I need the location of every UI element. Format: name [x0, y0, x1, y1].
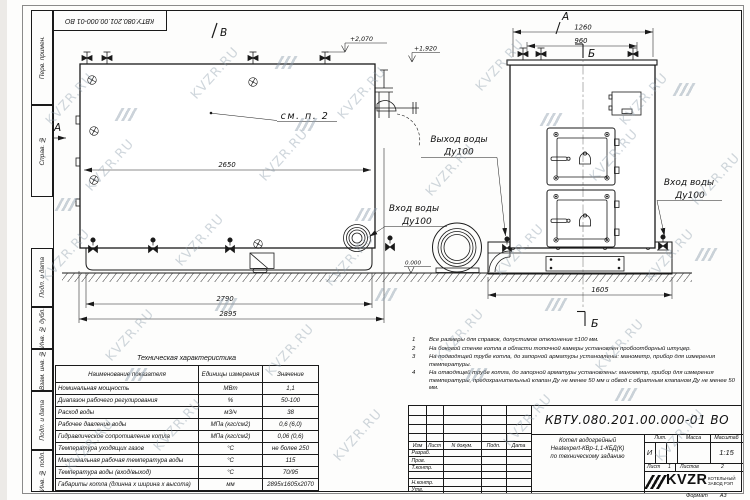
- row-unit: м3/ч: [199, 407, 263, 419]
- row-value: 38: [263, 407, 319, 419]
- row-name: Температура воды (вход/выход): [56, 467, 199, 479]
- scale-header: Масштаб: [710, 435, 743, 441]
- row-name: Габариты котла (длинна х ширина х высота…: [56, 479, 199, 491]
- kvzr-logo-text: KVZR: [666, 472, 707, 488]
- note-item: 4На отводящей трубе котла, до запорной а…: [412, 370, 738, 392]
- note-text: На отводящей трубе котла, до запорной ар…: [429, 370, 738, 392]
- col-date: Дата: [506, 443, 531, 449]
- note-text: Все размеры для справок, допустимое откл…: [429, 337, 738, 344]
- tech-header-value: Значение: [263, 366, 319, 383]
- table-row: Габариты котла (длинна х ширина х высота…: [56, 479, 319, 491]
- row-unit: МПа (кгс/см2): [199, 431, 263, 443]
- row-name: Гидравлическое сопротивление котла: [56, 431, 199, 443]
- table-row: Номинальная мощностьМВт1,1: [56, 383, 319, 395]
- note-item: 1Все размеры для справок, допустимое отк…: [412, 337, 738, 344]
- kvzr-logo-icon: [644, 475, 667, 489]
- table-row: Диапазон рабочего регулирования%50-100: [56, 395, 319, 407]
- row-unit: °С: [199, 443, 263, 455]
- sheet-label: Лист: [647, 464, 660, 470]
- format-word: Формат: [686, 493, 708, 499]
- product-name-line2: Heatexpert-КВр-1,1-КБД(К): [532, 445, 643, 453]
- table-row: Температура уходящих газов°Сне более 250: [56, 443, 319, 455]
- col-izm: Изм: [409, 443, 426, 449]
- row-value: 1,1: [263, 383, 319, 395]
- col-list: Лист: [426, 443, 443, 449]
- doc-number: КВТУ.080.201.00.000-01 ВО: [531, 406, 743, 434]
- scale-value: 1:15: [710, 442, 743, 463]
- note-item: 2На боковой стенке котла в области топоч…: [412, 346, 738, 353]
- lit-value: И: [644, 442, 655, 463]
- row-value: 50-100: [263, 395, 319, 407]
- table-row: Температура воды (вход/выход)°С70/95: [56, 467, 319, 479]
- table-row: Максимальная рабочая температура воды°С1…: [56, 455, 319, 467]
- lit-header: Лит.: [644, 435, 677, 441]
- side-box-inv-dubl: Инв. № дубл.: [31, 307, 53, 349]
- side-label: Инв. № подл.: [39, 451, 46, 491]
- side-label: Инв. № дубл.: [39, 308, 46, 348]
- row-unit: %: [199, 395, 263, 407]
- tech-table: Техническая характеристика Наименование …: [55, 355, 318, 491]
- row-name: Рабочее давление воды: [56, 419, 199, 431]
- note-item: 3На подводящей трубе котла, до запорной …: [412, 354, 738, 368]
- side-box-podp-data-2: Подп. и дата: [31, 391, 53, 450]
- col-sign: Подп.: [481, 443, 506, 449]
- product-name: Котел водогрейный Heatexpert-КВр-1,1-КБД…: [532, 437, 643, 462]
- table-row: Гидравлическое сопротивление котлаМПа (к…: [56, 431, 319, 443]
- row-tkontr: Т.контр.: [412, 465, 433, 471]
- note-number: 2: [412, 346, 429, 353]
- row-unit: мм: [199, 479, 263, 491]
- row-value: 0,06 (0,6): [263, 431, 319, 443]
- row-unit: МПа (кгс/см2): [199, 419, 263, 431]
- side-label: Подп. и дата: [39, 400, 46, 441]
- side-label: Перв. примен.: [39, 36, 46, 79]
- note-number: 1: [412, 337, 429, 344]
- row-razrab: Разраб.: [412, 450, 431, 456]
- side-box-sprav: Справ. №: [31, 105, 53, 197]
- row-name: Температура уходящих газов: [56, 443, 199, 455]
- row-nkontr: Н.контр.: [412, 480, 434, 486]
- note-text: На боковой стенке котла в области топочн…: [429, 346, 738, 353]
- notes: 1Все размеры для справок, допустимое отк…: [412, 337, 738, 393]
- sheet-edge: [0, 0, 7, 500]
- row-utv: Утв.: [412, 487, 424, 493]
- table-row: Расход водым3/ч38: [56, 407, 319, 419]
- row-value: не более 250: [263, 443, 319, 455]
- product-name-line1: Котел водогрейный: [532, 437, 643, 445]
- company-line2: ЗАВОД РЭП: [708, 481, 733, 486]
- doc-number-stamp-text: КВТУ.080.201.00.000-01 ВО: [65, 17, 154, 24]
- side-box-podp-data-1: Подп. и дата: [31, 248, 53, 307]
- tech-header-unit: Единицы измерения: [199, 366, 263, 383]
- row-value: 2895х1605х2070: [263, 479, 319, 491]
- tech-table-title: Техническая характеристика: [55, 355, 318, 365]
- side-box-vzam-inv: Взам. инв. №: [31, 349, 53, 391]
- row-unit: °С: [199, 467, 263, 479]
- table-row: Рабочее давление водыМПа (кгс/см2)0,6 (6…: [56, 419, 319, 431]
- title-block: Изм Лист N докум. Подп. Дата Разраб. Про…: [408, 405, 742, 492]
- side-label: Подп. и дата: [39, 257, 46, 298]
- col-doc: N докум.: [443, 443, 481, 449]
- sheets-value: 2: [721, 464, 724, 470]
- side-label: Взам. инв. №: [39, 350, 46, 390]
- row-name: Максимальная рабочая температура воды: [56, 455, 199, 467]
- tech-table-header-row: Наименование показателя Единицы измерени…: [56, 366, 319, 383]
- row-name: Диапазон рабочего регулирования: [56, 395, 199, 407]
- product-name-line3: по техническому заданию: [532, 453, 643, 461]
- mass-header: Масса: [677, 435, 710, 441]
- tech-header-name: Наименование показателя: [56, 366, 199, 383]
- row-unit: МВт: [199, 383, 263, 395]
- format-value: А3: [720, 493, 727, 499]
- row-name: Расход воды: [56, 407, 199, 419]
- note-number: 4: [412, 370, 429, 392]
- doc-number-stamp: КВТУ.080.201.00.000-01 ВО: [53, 10, 167, 31]
- row-value: 115: [263, 455, 319, 467]
- sheet-value: 1: [668, 464, 671, 470]
- row-unit: °С: [199, 455, 263, 467]
- row-prov: Пров.: [412, 458, 426, 464]
- row-value: 0,6 (6,0): [263, 419, 319, 431]
- side-label: Справ. №: [39, 136, 46, 166]
- note-text: На подводящей трубе котла, до запорной а…: [429, 354, 738, 368]
- row-value: 70/95: [263, 467, 319, 479]
- side-box-perv-primen: Перв. примен.: [31, 10, 53, 105]
- sheets-label: Листов: [680, 464, 699, 470]
- format-label: ФорматА3: [686, 493, 739, 499]
- row-name: Номинальная мощность: [56, 383, 199, 395]
- note-number: 3: [412, 354, 429, 368]
- side-box-inv-podl: Инв. № подл.: [31, 450, 53, 492]
- drawing-sheet: Перв. примен. Справ. № Подп. и дата Инв.…: [0, 0, 750, 500]
- company-line1: КОТЕЛЬНЫЙ: [708, 476, 736, 481]
